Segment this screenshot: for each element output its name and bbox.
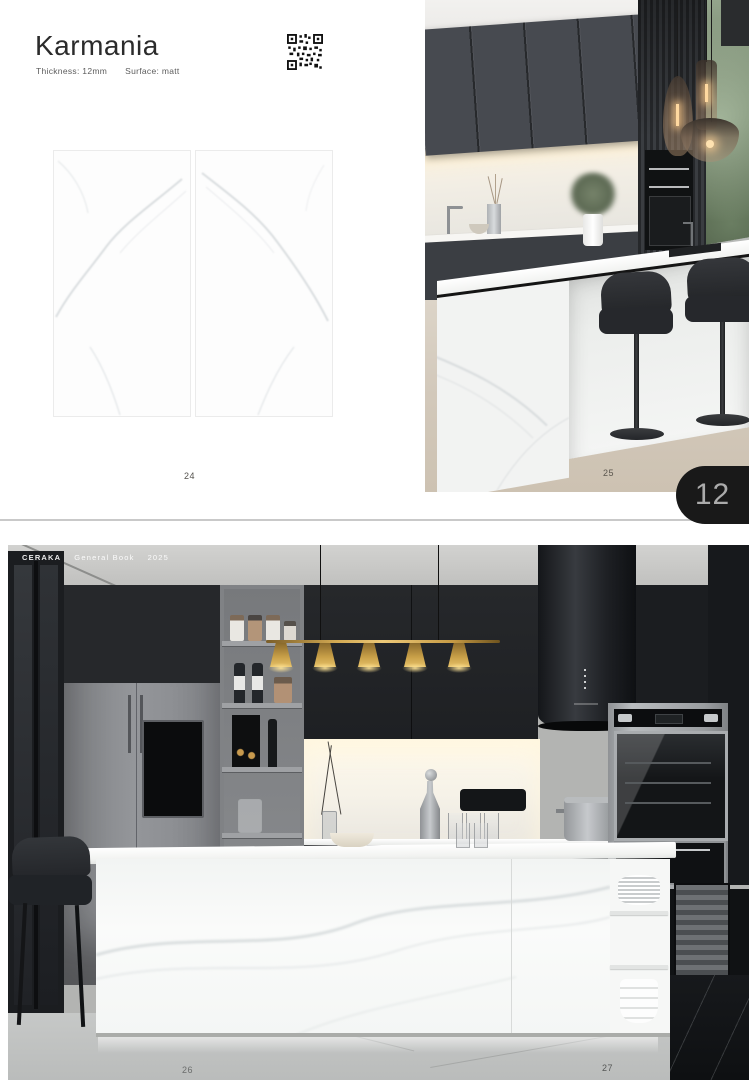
- shelf-board: [610, 965, 668, 969]
- window-blind-box: [721, 0, 749, 46]
- kitchen-photo-top: 25: [425, 0, 749, 492]
- pantry-jar: [230, 615, 244, 641]
- shelf-board: [222, 833, 302, 838]
- bar-stool-stem: [720, 322, 725, 418]
- gold-shade-glow: [402, 663, 428, 673]
- oven-rack: [625, 802, 711, 804]
- island-front-face: [96, 859, 610, 1035]
- door-frame: [34, 561, 38, 1009]
- island-end-shelf-unit: [610, 859, 670, 1035]
- filament: [705, 84, 708, 102]
- decanter-stopper: [425, 769, 437, 781]
- bar-stool-stem: [634, 334, 639, 432]
- bottle: [252, 663, 263, 703]
- bar-stool-seat: [8, 875, 92, 905]
- qr-code-icon: [287, 32, 323, 72]
- bar-stool-seat: [599, 308, 673, 334]
- pendant-cord: [320, 545, 321, 641]
- bar-stool-seat: [685, 296, 749, 322]
- spec-surface: Surface: matt: [125, 66, 179, 76]
- bottle: [234, 663, 245, 703]
- fridge-handle: [128, 695, 131, 753]
- flower-foliage: [567, 172, 619, 216]
- faucet-stem: [447, 206, 450, 234]
- floor-reflection: [98, 1037, 658, 1053]
- tile-swatch-left: [53, 150, 191, 417]
- island-faucet: [691, 222, 693, 246]
- page-number-26: 26: [182, 1065, 193, 1075]
- tile-swatch-right: [195, 150, 333, 417]
- island-panel-seam: [511, 859, 512, 1035]
- gold-shade-glow: [446, 663, 472, 673]
- dried-sprig: [495, 174, 496, 204]
- door-glass: [40, 565, 58, 1005]
- bowl-stack: [620, 979, 658, 1023]
- fridge-screen: [142, 720, 204, 818]
- oven-door: [649, 196, 691, 246]
- plate-stack: [618, 875, 660, 905]
- window-blind: [674, 883, 730, 983]
- oven-handle: [649, 186, 689, 188]
- pantry-jar: [284, 621, 296, 641]
- oven-button: [704, 714, 718, 722]
- page-number-25: 25: [603, 468, 614, 478]
- glass-doorway: [8, 551, 64, 1080]
- flower-vase: [583, 214, 603, 246]
- oven-door: [614, 731, 728, 841]
- filament: [706, 140, 714, 148]
- pantry-jar: [274, 677, 292, 703]
- page-tab[interactable]: 12: [676, 466, 749, 524]
- gold-shade-glow: [312, 663, 338, 673]
- floor-dark-right: [670, 975, 749, 1080]
- oven-display: [655, 714, 683, 724]
- oven-rack: [625, 782, 711, 784]
- glass-cup: [474, 823, 488, 848]
- pendant-cord: [438, 545, 439, 641]
- product-specs: Thickness: 12mm Surface: matt: [36, 66, 180, 76]
- hood-brand-mark: [574, 703, 598, 705]
- pantry-jar: [248, 615, 262, 641]
- gold-shade-glow: [268, 663, 294, 673]
- wine-box: [232, 715, 260, 767]
- pantry-jar: [266, 615, 280, 641]
- gold-shade-glow: [356, 663, 382, 673]
- island-faucet-spout: [683, 222, 693, 224]
- upper-cabinets: [425, 14, 651, 155]
- hood-control-dots: [584, 669, 586, 671]
- dark-bottle: [268, 719, 277, 767]
- page-tab-number: 12: [695, 478, 730, 512]
- tile-swatch-pair: [53, 150, 333, 417]
- pot-handle: [556, 809, 564, 813]
- island-waterfall-panel: [437, 269, 569, 492]
- kitchen-photo-bottom: CERAKA General Book 2025 26 27: [8, 545, 749, 1080]
- gold-light-bar: [266, 640, 500, 643]
- book-name: General Book: [74, 553, 134, 562]
- spread-divider: [0, 519, 749, 521]
- page-number-27: 27: [602, 1063, 613, 1073]
- brand-name: CERAKA: [22, 553, 61, 562]
- shelf-board: [222, 703, 302, 708]
- counter-vase: [487, 204, 501, 234]
- oven-button: [618, 714, 632, 722]
- product-title: Karmania: [35, 30, 159, 62]
- glass-cup: [456, 823, 470, 848]
- oven-rack: [625, 762, 711, 764]
- oven-control-panel: [614, 709, 722, 727]
- spread-top-left-page: Karmania Thickness: 12mm Surface: matt: [0, 0, 425, 520]
- shelf-board: [610, 911, 668, 915]
- page-number-24: 24: [184, 471, 195, 481]
- bar-stool-base: [696, 414, 749, 426]
- pendant-cord: [706, 0, 707, 62]
- utensil-rack: [460, 789, 526, 811]
- spec-thickness: Thickness: 12mm: [36, 66, 107, 76]
- filament: [676, 104, 679, 126]
- shelf-board: [222, 767, 302, 772]
- glass-jar: [238, 799, 262, 833]
- bar-stool-base: [610, 428, 664, 440]
- catalog-page: Karmania Thickness: 12mm Surface: matt: [0, 0, 749, 1080]
- built-in-oven: [645, 150, 693, 250]
- bar-stool-back: [11, 836, 90, 879]
- cabinet-above-fridge: [64, 585, 220, 683]
- pendant-cord: [677, 0, 678, 78]
- oven-handle: [649, 168, 689, 170]
- book-year: 2025: [148, 553, 170, 562]
- catalog-header: CERAKA General Book 2025: [22, 553, 169, 562]
